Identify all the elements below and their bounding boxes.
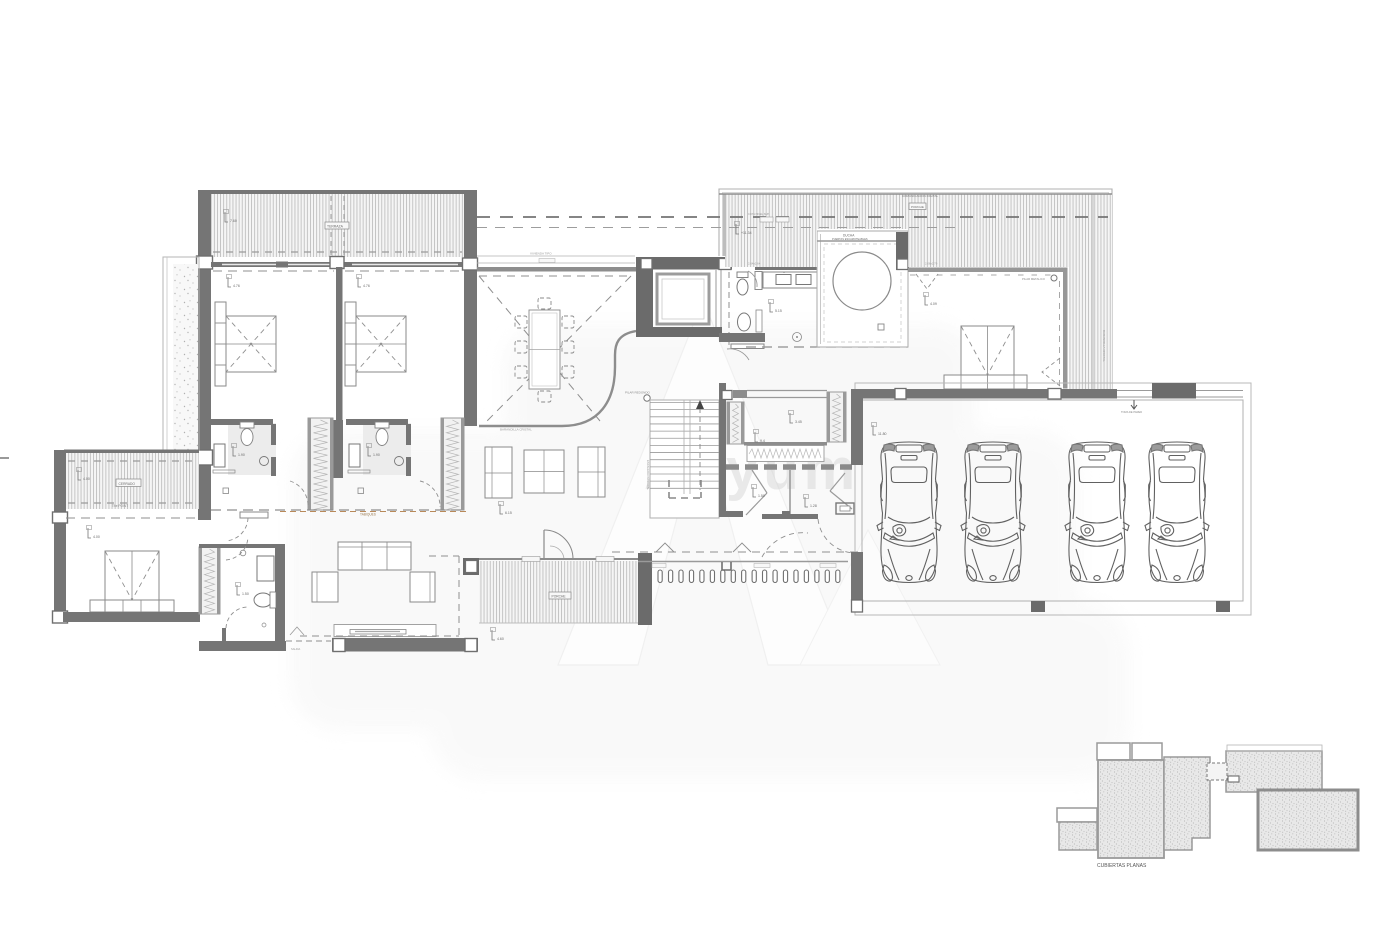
svg-text:CUBIERTAS PLANAS: CUBIERTAS PLANAS — [1097, 863, 1147, 869]
svg-text:PILAR REDONDO: PILAR REDONDO — [625, 391, 651, 395]
svg-text:1.90: 1.90 — [373, 453, 380, 457]
svg-text:2.64x2.64: 2.64x2.64 — [748, 262, 761, 266]
svg-text:4.76: 4.76 — [233, 284, 240, 288]
svg-text:COTA NIVEL SUP.: COTA NIVEL SUP. — [748, 212, 770, 216]
svg-text:4.60: 4.60 — [497, 637, 504, 641]
svg-text:PUERTAS ESCAMOTEABLES: PUERTAS ESCAMOTEABLES — [832, 237, 868, 241]
svg-text:VIVIENDA TIPO: VIVIENDA TIPO — [530, 252, 552, 256]
svg-text:1.28: 1.28 — [810, 504, 817, 508]
svg-text:The POINT: The POINT — [112, 504, 128, 508]
svg-text:BARANDILLA CRISTAL: BARANDILLA CRISTAL — [1102, 330, 1106, 362]
svg-text:PORCHE: PORCHE — [911, 205, 924, 209]
svg-text:PORCHE: PORCHE — [552, 595, 567, 599]
svg-text:11.80: 11.80 — [878, 432, 887, 436]
svg-text:4.09: 4.09 — [930, 302, 937, 306]
svg-text:4.76: 4.76 — [363, 284, 370, 288]
svg-text:4.00: 4.00 — [93, 535, 100, 539]
svg-text:3.45: 3.45 — [795, 420, 802, 424]
svg-text:1.90: 1.90 — [238, 453, 245, 457]
svg-text:TOMA DE PARED: TOMA DE PARED — [1121, 410, 1142, 414]
svg-text:4.00: 4.00 — [83, 477, 90, 481]
svg-text:ESCALERA PRINCIPAL: ESCALERA PRINCIPAL — [646, 460, 650, 491]
svg-text:7.60: 7.60 — [230, 219, 237, 223]
svg-text:COMUNICACION DIGITAL: COMUNICACION DIGITAL — [902, 194, 938, 198]
svg-text:TERRAZA: TERRAZA — [327, 225, 344, 229]
svg-text:6.15: 6.15 — [505, 511, 512, 515]
svg-text:1.50: 1.50 — [758, 494, 765, 498]
svg-text:TABIQUES: TABIQUES — [360, 513, 376, 517]
svg-text:PILAR METALICO: PILAR METALICO — [1022, 277, 1046, 281]
svg-text:DUCHA: DUCHA — [843, 234, 855, 238]
svg-text:2.06x2.79: 2.06x2.79 — [925, 262, 938, 266]
svg-text:+11.34: +11.34 — [741, 231, 752, 235]
svg-text:1.50: 1.50 — [242, 592, 249, 596]
svg-text:CERRADO: CERRADO — [119, 482, 136, 486]
svg-text:9.4: 9.4 — [760, 439, 765, 443]
svg-text:SALIDA: SALIDA — [291, 647, 300, 651]
svg-text:BARANDILLA CRISTAL: BARANDILLA CRISTAL — [500, 428, 532, 432]
svg-text:5.15: 5.15 — [775, 309, 782, 313]
